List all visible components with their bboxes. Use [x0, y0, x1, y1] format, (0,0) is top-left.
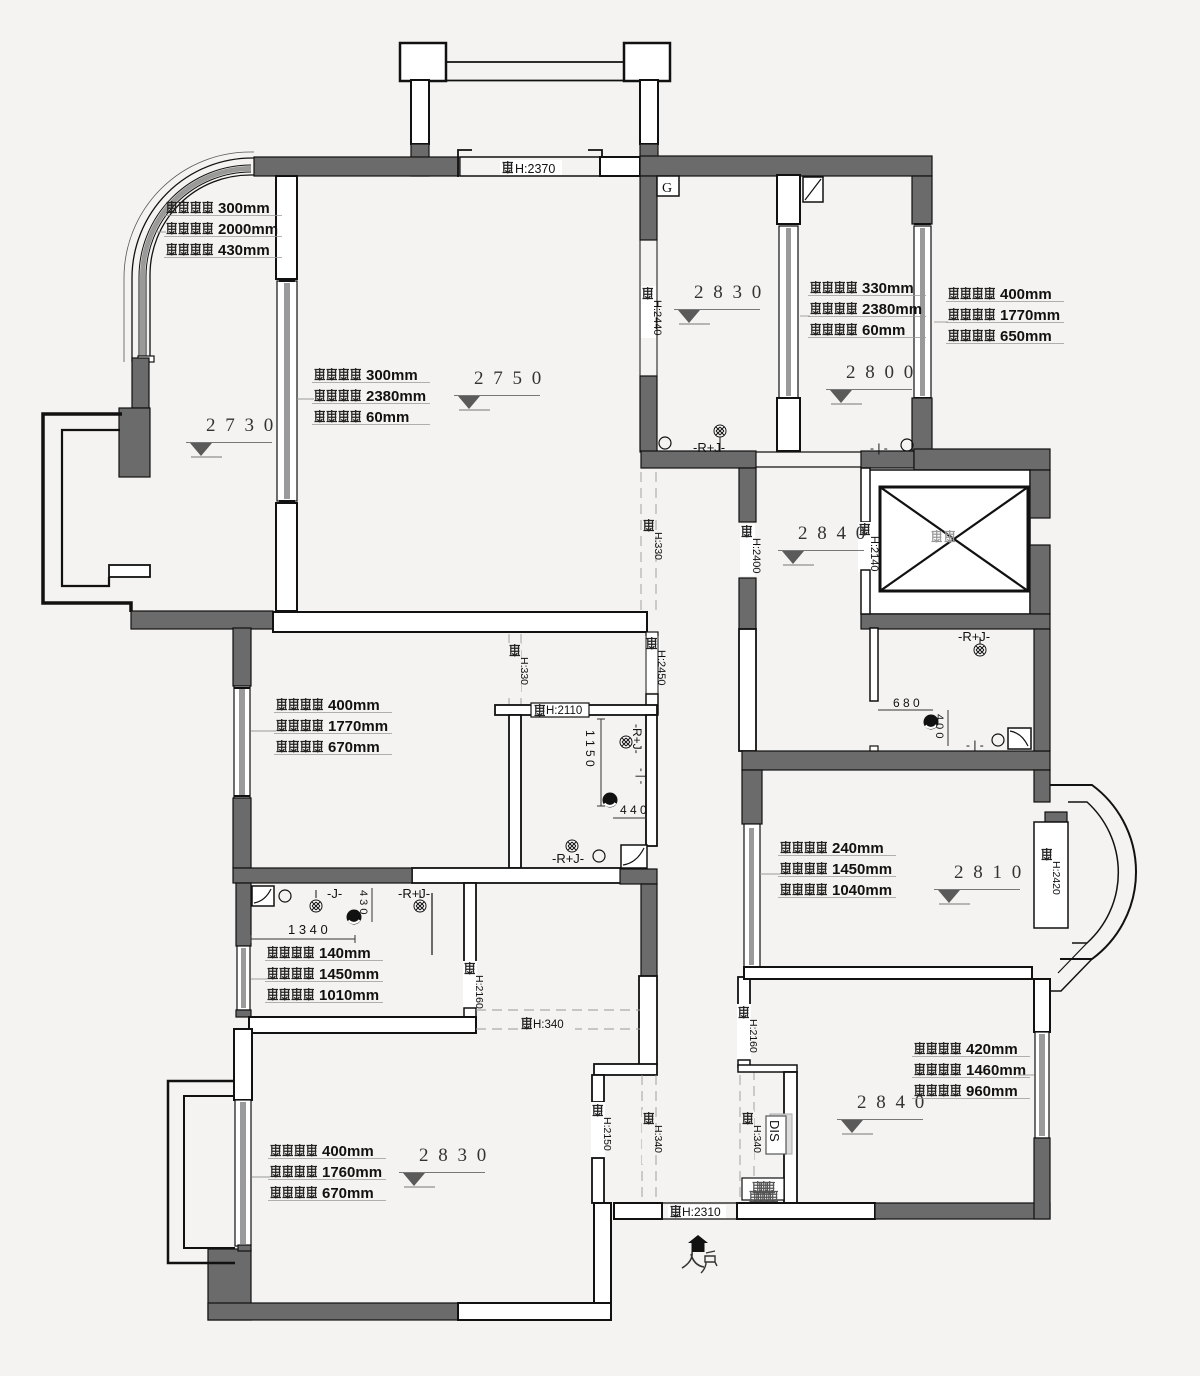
svg-text:2380mm: 2380mm — [862, 301, 922, 318]
svg-text:G: G — [662, 181, 672, 196]
svg-text:2 8 3 0: 2 8 3 0 — [694, 282, 764, 303]
svg-text:H:2450: H:2450 — [655, 650, 667, 685]
svg-text:2 8 0 0: 2 8 0 0 — [846, 362, 916, 383]
svg-text:-J-: -J- — [327, 886, 342, 901]
svg-text:2 8 1 0: 2 8 1 0 — [954, 862, 1024, 883]
svg-text:H:2440: H:2440 — [651, 300, 663, 335]
svg-text:- | -: - | - — [635, 768, 647, 785]
svg-text:1460mm: 1460mm — [966, 1062, 1026, 1079]
svg-text:1760mm: 1760mm — [322, 1164, 382, 1181]
svg-text:140mm: 140mm — [319, 945, 371, 962]
svg-text:H:2110: H:2110 — [546, 705, 582, 717]
svg-text:400mm: 400mm — [1000, 286, 1052, 303]
svg-text:960mm: 960mm — [966, 1083, 1018, 1100]
svg-text:H:2310: H:2310 — [682, 1205, 721, 1219]
svg-text:H:2140: H:2140 — [868, 536, 880, 571]
svg-text:H:2420: H:2420 — [1050, 861, 1062, 895]
svg-text:1010mm: 1010mm — [319, 987, 379, 1004]
svg-text:H:330: H:330 — [518, 657, 530, 685]
svg-text:H:340: H:340 — [533, 1019, 564, 1031]
svg-text:2 8 4 0: 2 8 4 0 — [798, 523, 868, 544]
svg-text:-R+J-: -R+J- — [958, 629, 990, 644]
svg-text:4 3 0: 4 3 0 — [357, 890, 369, 914]
svg-text:400mm: 400mm — [328, 697, 380, 714]
svg-text:-R+J-: -R+J- — [398, 886, 430, 901]
svg-text:1450mm: 1450mm — [832, 861, 892, 878]
svg-text:1 1 5 0: 1 1 5 0 — [583, 730, 597, 767]
svg-text:1770mm: 1770mm — [1000, 307, 1060, 324]
svg-text:300mm: 300mm — [218, 200, 270, 217]
svg-text:1040mm: 1040mm — [832, 882, 892, 899]
svg-text:60mm: 60mm — [366, 409, 409, 426]
svg-text:4 4 0: 4 4 0 — [620, 803, 647, 817]
svg-text:420mm: 420mm — [966, 1041, 1018, 1058]
svg-text:H:330: H:330 — [652, 532, 664, 560]
svg-text:H:340: H:340 — [751, 1125, 763, 1153]
svg-text:H:2400: H:2400 — [750, 538, 762, 573]
svg-text:-R+J-: -R+J- — [630, 724, 644, 754]
svg-text:650mm: 650mm — [1000, 328, 1052, 345]
svg-text:1 3 4 0: 1 3 4 0 — [288, 922, 328, 937]
svg-text:- | -: - | - — [870, 441, 888, 455]
svg-text:1450mm: 1450mm — [319, 966, 379, 983]
svg-text:2 7 3 0: 2 7 3 0 — [206, 415, 276, 436]
svg-text:DIS: DIS — [767, 1120, 782, 1142]
svg-text:400mm: 400mm — [322, 1143, 374, 1160]
svg-text:430mm: 430mm — [218, 242, 270, 259]
svg-text:240mm: 240mm — [832, 840, 884, 857]
svg-text:2380mm: 2380mm — [366, 388, 426, 405]
svg-text:670mm: 670mm — [328, 739, 380, 756]
svg-text:H:2370: H:2370 — [515, 162, 555, 176]
svg-text:330mm: 330mm — [862, 280, 914, 297]
svg-text:H:340: H:340 — [652, 1125, 664, 1153]
svg-text:H:2160: H:2160 — [473, 975, 485, 1009]
svg-text:6 8 0: 6 8 0 — [893, 696, 920, 710]
svg-text:4 0 0: 4 0 0 — [933, 714, 945, 738]
svg-text:60mm: 60mm — [862, 322, 905, 339]
svg-text:- | -: - | - — [966, 738, 984, 752]
svg-text:H:2150: H:2150 — [601, 1117, 613, 1151]
svg-text:2 8 3 0: 2 8 3 0 — [419, 1145, 489, 1166]
svg-text:H:2160: H:2160 — [747, 1019, 759, 1053]
svg-text:-R+J-: -R+J- — [552, 851, 584, 866]
svg-text:670mm: 670mm — [322, 1185, 374, 1202]
svg-text:1770mm: 1770mm — [328, 718, 388, 735]
svg-text:2 7 5 0: 2 7 5 0 — [474, 368, 544, 389]
svg-text:2000mm: 2000mm — [218, 221, 278, 238]
svg-text:300mm: 300mm — [366, 367, 418, 384]
